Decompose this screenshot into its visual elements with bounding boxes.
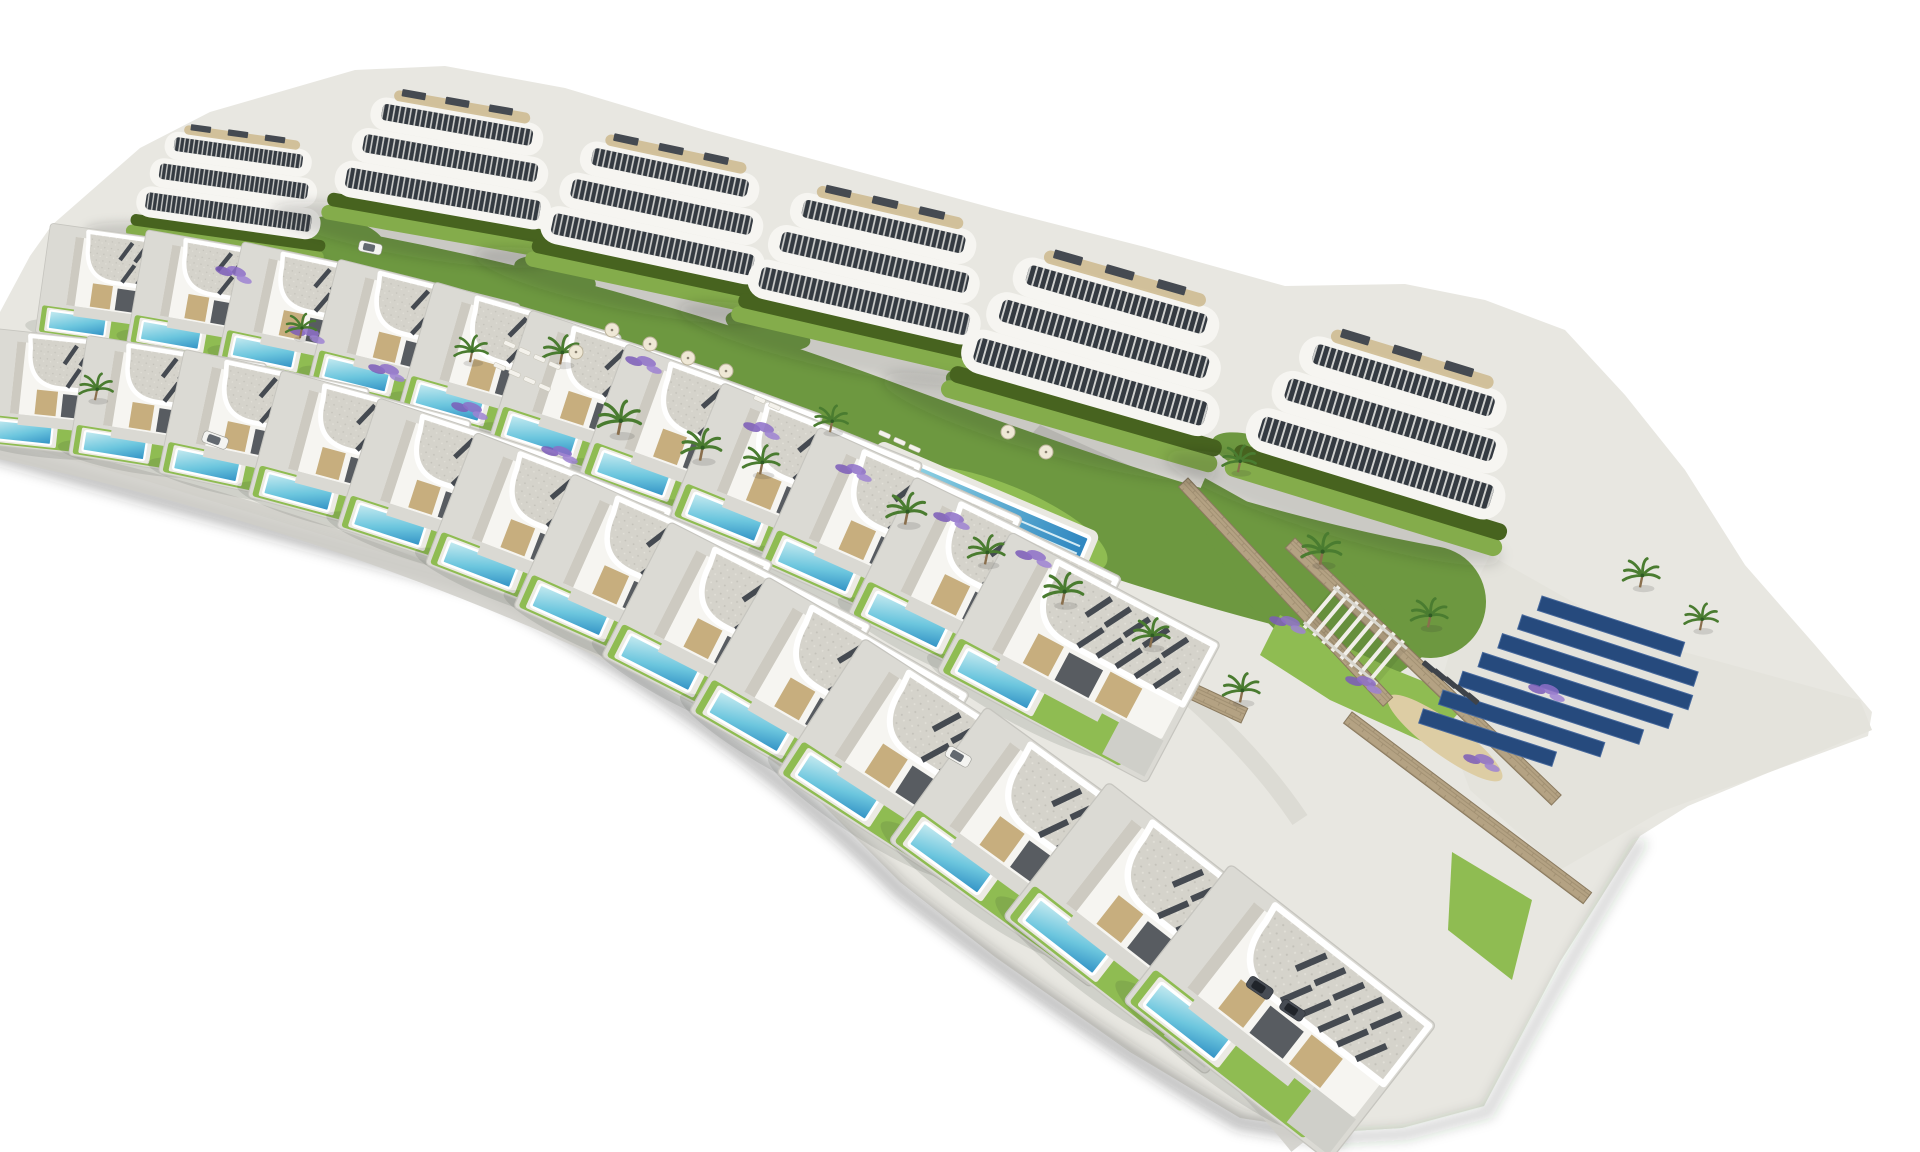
parasol xyxy=(1001,425,1015,439)
parasol xyxy=(643,337,657,351)
parasol xyxy=(719,364,733,378)
site-plan-svg xyxy=(0,0,1920,1152)
parasol xyxy=(569,345,583,359)
parasol xyxy=(605,323,619,337)
aerial-site-render xyxy=(0,0,1920,1152)
parasol xyxy=(681,351,695,365)
parasol xyxy=(1039,445,1053,459)
